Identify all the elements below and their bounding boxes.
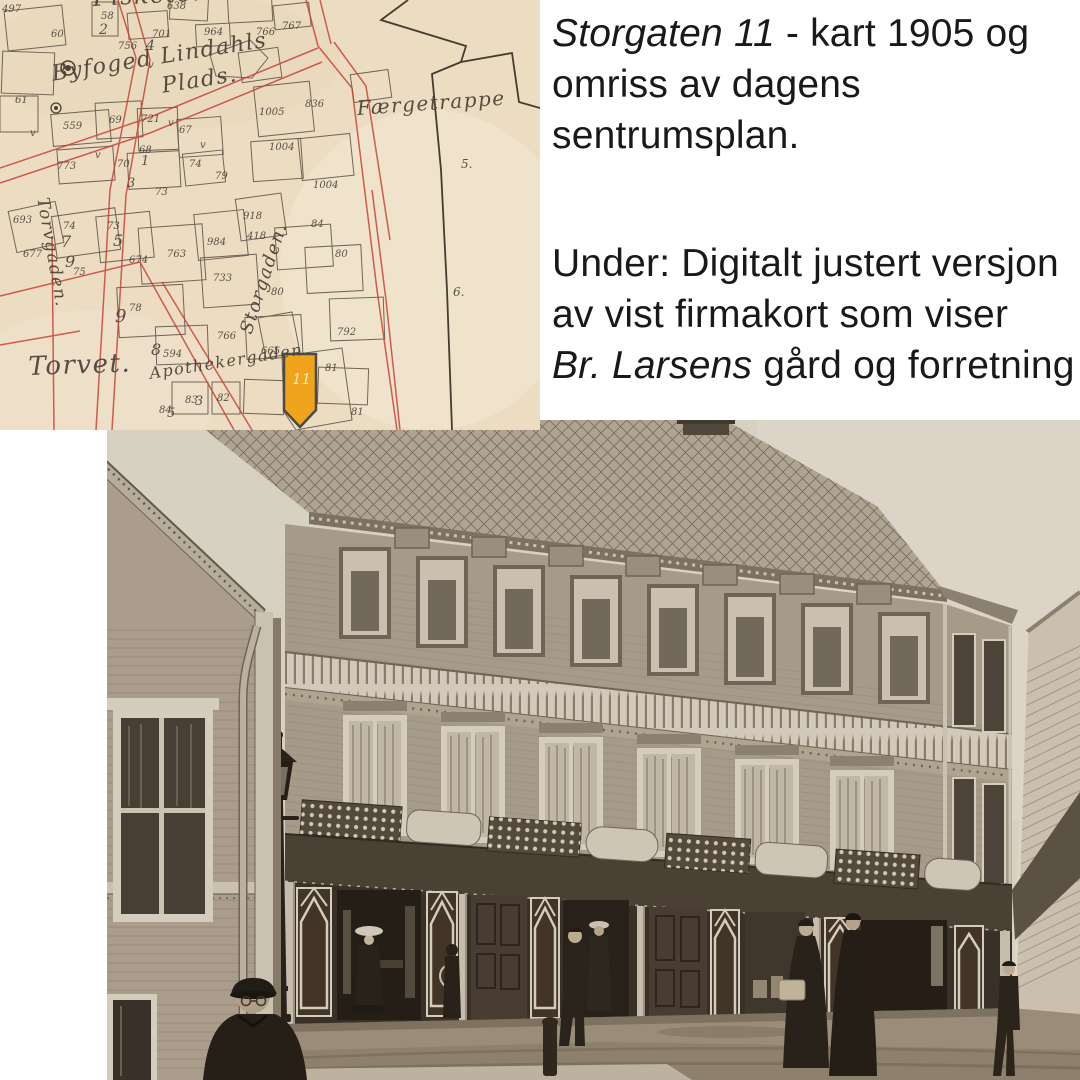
- photo-figure: [107, 420, 1080, 1080]
- map-plot-number: 74: [189, 159, 202, 170]
- map-plot-number: 82: [217, 393, 230, 404]
- map-plot-number: 1: [141, 154, 149, 169]
- caption-title-rest: - kart 1905 og: [775, 12, 1029, 55]
- map-plot-number: 559: [63, 121, 82, 132]
- photo-canvas: [107, 420, 1080, 1080]
- map-plot-number: 69: [109, 115, 122, 126]
- caption-line: av vist firmakort som viser: [552, 289, 1078, 340]
- map-plot-number: 5: [113, 231, 123, 250]
- map-plot-number: 70: [117, 159, 130, 170]
- map-plot-number: 918: [243, 211, 262, 222]
- map-plot-number: 665: [261, 346, 280, 357]
- map-plot-number: 7: [61, 232, 71, 251]
- caption-line-rest: gård og forretning: [752, 344, 1075, 387]
- highlighted-plot: [284, 354, 316, 427]
- map-plot-number: 5.: [461, 157, 472, 171]
- map-plot-number: 61: [15, 95, 28, 106]
- map-plot-number: 80: [271, 287, 284, 298]
- map-plot-number: 638: [167, 1, 186, 12]
- map-plot-number: 5: [167, 406, 175, 421]
- map-figure: FisketorvetByfoged LindahlsPlads.Færgetr…: [0, 0, 540, 430]
- map-plot-number: 8: [151, 340, 161, 359]
- map-plot-number: 3: [127, 176, 135, 191]
- map-plot-number: 1005: [259, 107, 284, 118]
- map-plot-number: v: [95, 150, 101, 161]
- map-plot-number: 9: [115, 306, 126, 327]
- caption-title-italic: Storgaten 11: [552, 12, 775, 55]
- map-plot-number: 594: [163, 349, 182, 360]
- map-plot-number: 80: [335, 249, 348, 260]
- page: FisketorvetByfoged LindahlsPlads.Færgetr…: [0, 0, 1080, 1080]
- map-plot-number: 763: [167, 249, 186, 260]
- map-plot-number: 721: [141, 114, 160, 125]
- caption-line: omriss av dagens: [552, 59, 1078, 110]
- map-plot-number: 74: [63, 221, 76, 232]
- map-plot-number: 677: [23, 249, 42, 260]
- map-plot-number: 73: [155, 187, 168, 198]
- map-plot-number: 733: [213, 273, 232, 284]
- map-plot-number: 1004: [313, 180, 338, 191]
- map-plot-number: 693: [13, 215, 32, 226]
- map-plot-number: v: [148, 60, 154, 71]
- map-plot-number: v: [168, 118, 174, 129]
- map-plot-number: 792: [337, 327, 356, 338]
- map-plot-number: 79: [215, 171, 228, 182]
- map-plot-number: 964: [204, 27, 223, 38]
- map-plot-number: 674: [129, 255, 148, 266]
- caption-top: Storgaten 11 - kart 1905 og omriss av da…: [552, 8, 1078, 161]
- caption-line: Br. Larsens gård og forretning: [552, 340, 1078, 391]
- map-plot-number: 836: [305, 99, 324, 110]
- map-plot-number: v: [30, 128, 36, 139]
- map-plot-number: 767: [282, 21, 301, 32]
- map-plot-number: 984: [207, 237, 226, 248]
- map-plot-number: 756: [118, 41, 137, 52]
- caption-line: Storgaten 11 - kart 1905 og: [552, 8, 1078, 59]
- map-plot-number: 78: [129, 303, 142, 314]
- map-plot-number: 58: [101, 11, 114, 22]
- map-plot-number: 1004: [269, 142, 294, 153]
- map-plot-number: 766: [217, 331, 236, 342]
- map-plot-number: 67: [179, 125, 192, 136]
- map-plot-number: 75: [73, 267, 86, 278]
- map-plot-number: 4: [146, 38, 155, 54]
- map-plot-number: 418: [247, 231, 266, 242]
- map-plot-number: 3: [195, 394, 203, 409]
- highlighted-plot-label: 11: [292, 370, 311, 388]
- caption-line: Under: Digitalt justert versjon: [552, 238, 1078, 289]
- caption-company-italic: Br. Larsens: [552, 344, 752, 387]
- map-plot-number: 773: [57, 161, 76, 172]
- map-street-label: Torvet.: [28, 348, 132, 382]
- caption-bottom: Under: Digitalt justert versjon av vist …: [552, 238, 1078, 391]
- map-plot-number: 81: [351, 407, 364, 418]
- map-plot-number: 84: [311, 219, 324, 230]
- map-plot-number: v: [200, 140, 206, 151]
- map-plot-number: 2: [99, 22, 108, 38]
- map-plot-number: 497: [2, 4, 21, 15]
- map-plot-number: 6.: [453, 285, 464, 299]
- map-plot-number: 766: [256, 27, 275, 38]
- map-plot-number: 81: [325, 363, 338, 374]
- caption-line: sentrumsplan.: [552, 110, 1078, 161]
- map-plot-number: 60: [51, 29, 64, 40]
